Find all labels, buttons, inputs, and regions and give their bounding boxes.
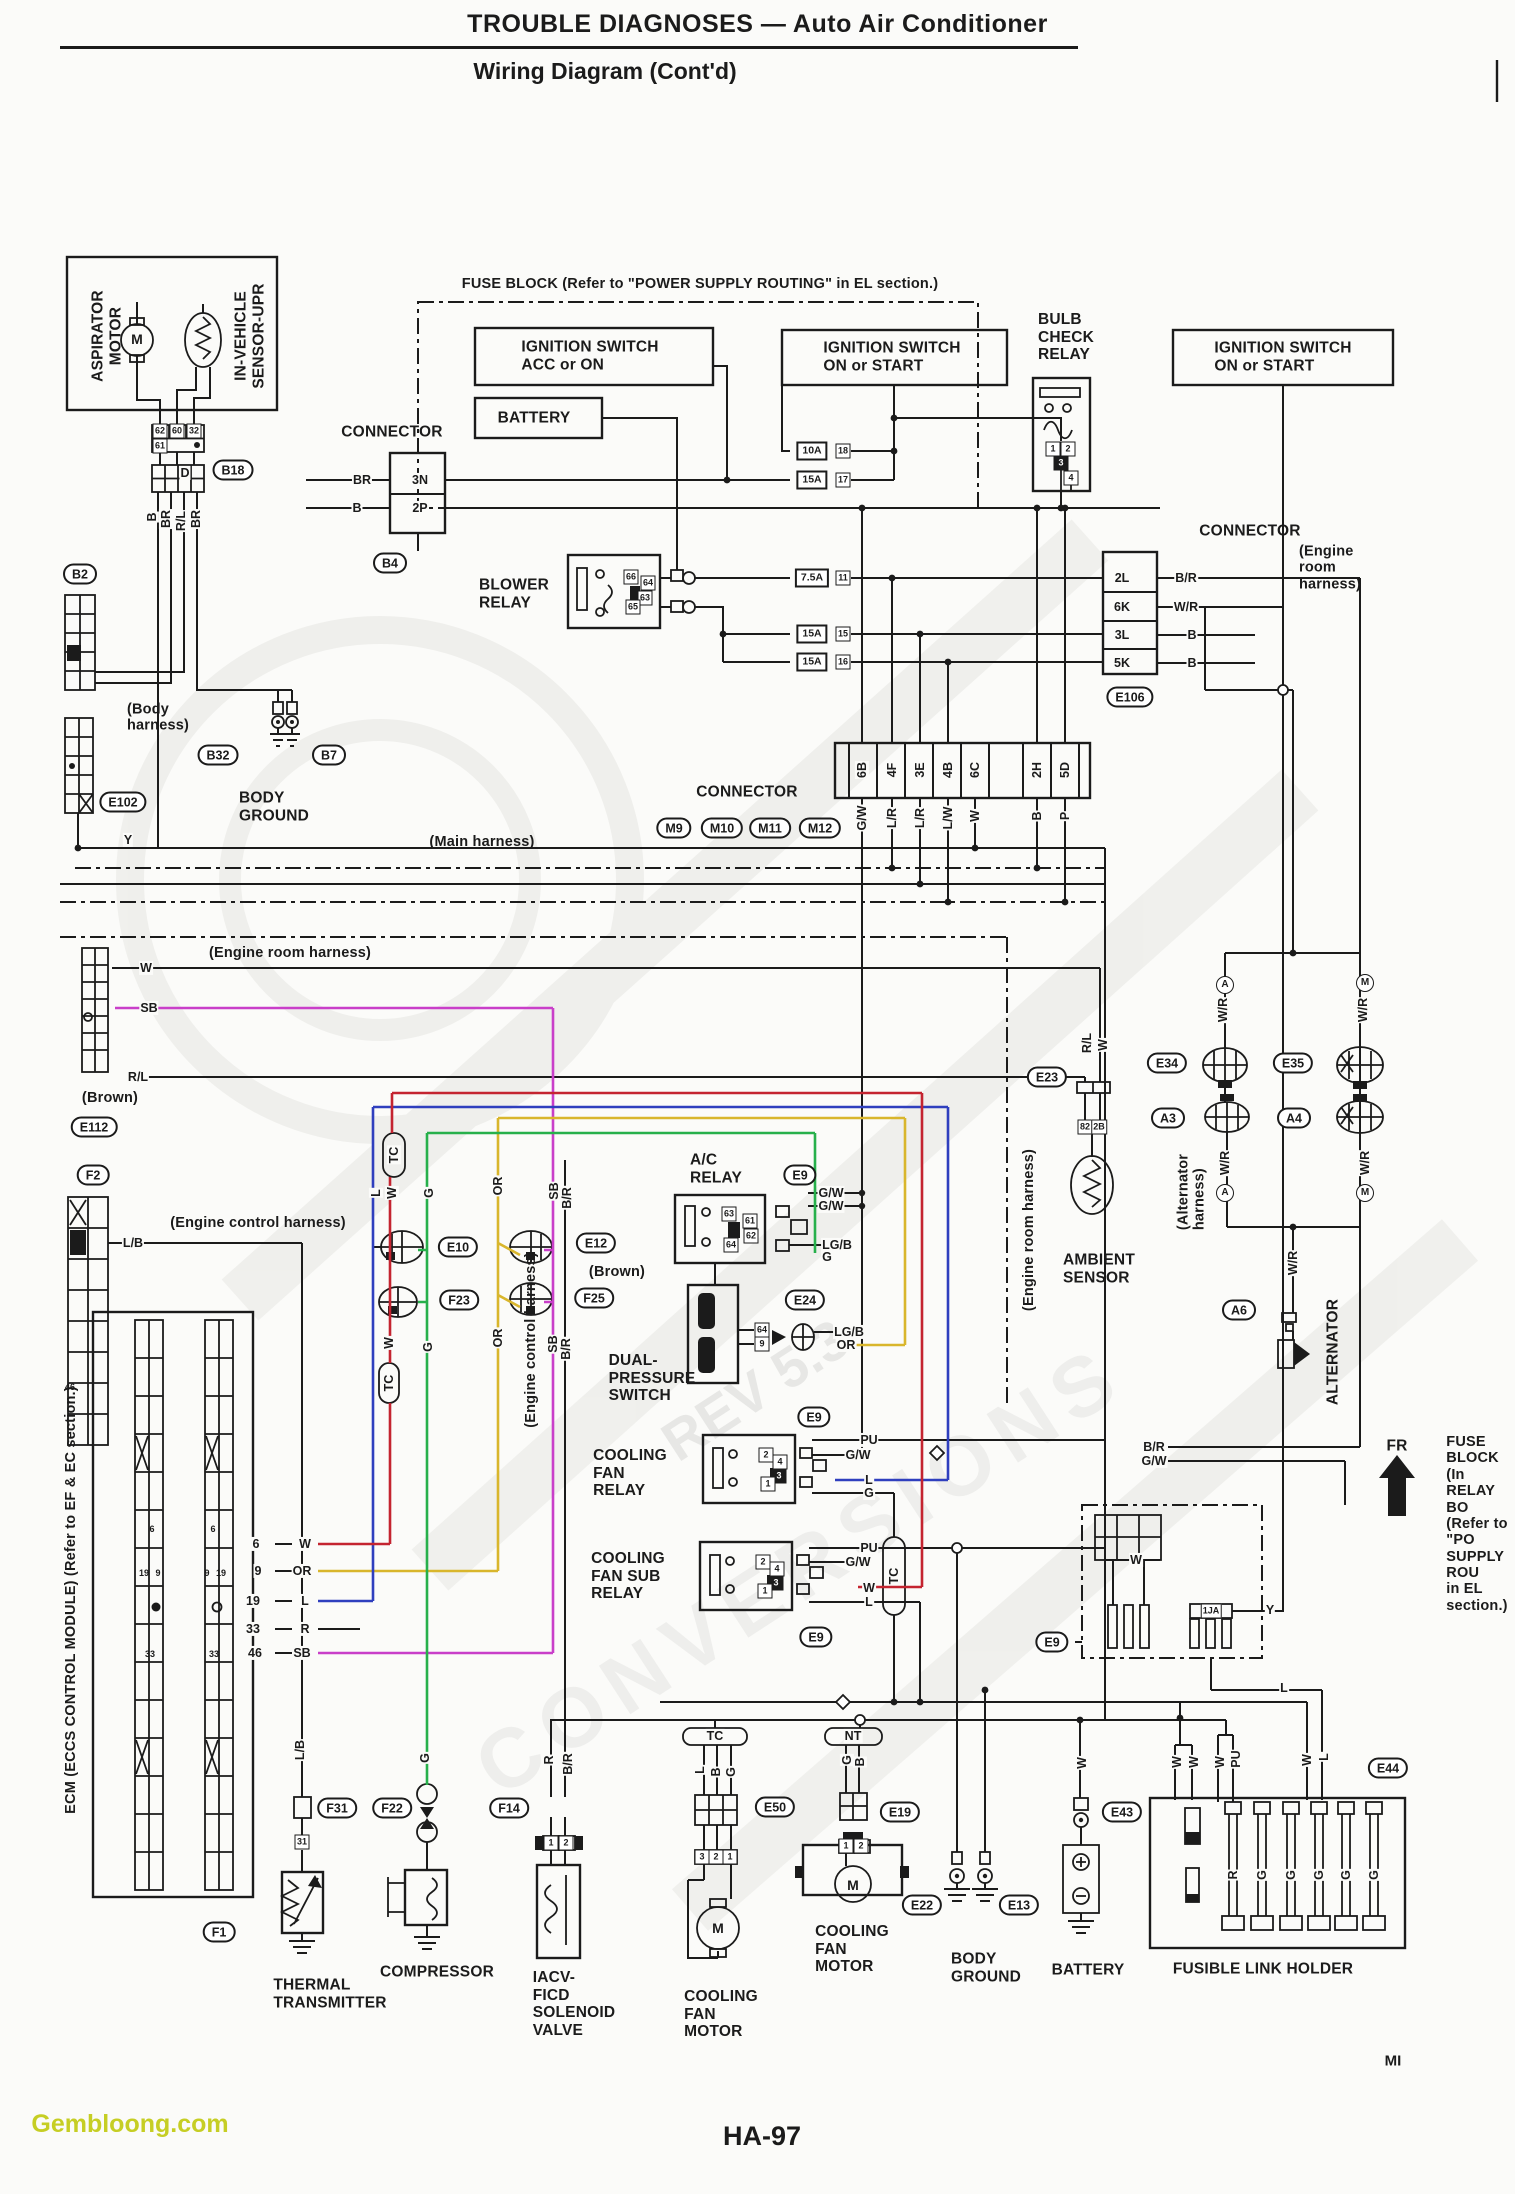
wire-label-pu: PU [859, 1541, 878, 1555]
fuse-number-17: 17 [836, 473, 851, 488]
pin-60: 60 [170, 424, 185, 439]
connector-tag-e24: E24 [785, 1289, 825, 1310]
wire-label-m: M [846, 1878, 860, 1894]
connector-tag-b7: B7 [312, 744, 346, 765]
wire-label-g: G [840, 1754, 854, 1766]
wire-label-r-l: R/L [174, 510, 188, 532]
wire-label-b-r: B/R [1142, 1440, 1166, 1454]
connector-tag-b2: B2 [63, 563, 97, 584]
fr-label: FR [1386, 1437, 1407, 1455]
connector-tag-f25: F25 [574, 1287, 614, 1308]
pin-1: 1 [761, 1477, 776, 1492]
wire-label-l-b: L/B [293, 1739, 307, 1761]
pin-4: 4 [770, 1562, 785, 1577]
wire-label-19: 19 [215, 1568, 227, 1578]
wire-label-9: 9 [254, 1564, 263, 1578]
wire-label-r: R [299, 1622, 310, 1636]
fuse-number-16: 16 [836, 655, 851, 670]
wire-label-g: G [422, 1187, 436, 1199]
engine-room-harness-note-1: (Engine room harness) [1299, 543, 1361, 592]
thermal-transmitter-label: THERMAL TRANSMITTER [273, 1977, 386, 2012]
alternator-harness-note: (Alternator harness) [1176, 1154, 1209, 1230]
fuse-number-11: 11 [836, 571, 851, 586]
wire-label-w: W [298, 1537, 312, 1551]
pin-3: 3 [695, 1850, 710, 1865]
wire-label-2h: 2H [1030, 761, 1044, 779]
pin-3: 3 [1054, 456, 1069, 471]
wire-label-g: G [1284, 1869, 1298, 1881]
connector-tag-e19: E19 [880, 1801, 920, 1822]
body-harness-note: (Body harness) [127, 702, 189, 735]
engine-control-harness-note-1: (Engine control harness) [170, 1215, 346, 1231]
connector-tag-e9: E9 [797, 1406, 830, 1427]
wire-label-r-l: R/L [127, 1070, 149, 1084]
wire-label-33: 33 [208, 1649, 220, 1659]
wire-label-g: G [863, 1486, 875, 1500]
wire-label-w-r: W/R [1216, 997, 1230, 1023]
wire-label-l: L [864, 1595, 874, 1609]
wire-label-9: 9 [154, 1568, 161, 1578]
bulb-check-relay-label: BULB CHECK RELAY [1038, 311, 1094, 364]
wire-label-6c: 6C [968, 761, 982, 779]
pin-63: 63 [722, 1207, 737, 1222]
connector-tag-e35: E35 [1273, 1052, 1313, 1073]
pin-31: 31 [295, 1835, 310, 1850]
brown-note-1: (Brown) [82, 1090, 138, 1106]
wire-label-w-r: W/R [1218, 1150, 1232, 1176]
wire-label-w: W [139, 961, 153, 975]
wire-label-w-r: W/R [1173, 600, 1199, 614]
cooling-fan-sub-relay-label: COOLING FAN SUB RELAY [591, 1550, 665, 1603]
alternator-label: ALTERNATOR [1324, 1299, 1342, 1405]
wire-label-or: OR [836, 1338, 857, 1352]
wire-label-g-w: G/W [1141, 1454, 1168, 1468]
wire-label-y: Y [123, 833, 133, 847]
fuse-15a-16: 15A [796, 653, 827, 672]
pin-2: 2 [854, 1839, 869, 1854]
cooling-fan-motor-1-label: COOLING FAN MOTOR [684, 1988, 758, 2041]
pin-1ja: 1JA [1201, 1604, 1222, 1619]
wire-label-w: W [1096, 1038, 1110, 1052]
body-ground-label-1: BODY GROUND [239, 790, 309, 825]
wire-label-4f: 4F [885, 762, 899, 779]
wire-label-3l: 3L [1114, 628, 1131, 642]
wire-label-b: B [1186, 628, 1197, 642]
wire-label-g: G [1339, 1869, 1353, 1881]
pin-2: 2 [759, 1448, 774, 1463]
pin-64: 64 [755, 1323, 770, 1338]
pin-1: 1 [758, 1584, 773, 1599]
engine-room-harness-note-2: (Engine room harness) [209, 945, 371, 961]
pin-4: 4 [1064, 471, 1079, 486]
connector-tag-m11: M11 [749, 817, 791, 838]
wire-label-b: B [145, 511, 159, 522]
connector-tag-e9: E9 [783, 1164, 816, 1185]
ignition-switch-acc-label: IGNITION SWITCH ACC or ON [521, 339, 658, 374]
wire-label-l-r: L/R [913, 807, 927, 829]
pin-1: 1 [544, 1836, 559, 1851]
fuse-7-5a-11: 7.5A [795, 569, 829, 588]
connector-tag-e22: E22 [902, 1894, 942, 1915]
wire-label-l: L [693, 1765, 707, 1775]
label-overlay: FUSE BLOCK (Refer to "POWER SUPPLY ROUTI… [0, 0, 1515, 2194]
aspirator-motor-label: ASPIRATOR MOTOR [90, 290, 125, 382]
wire-label-y: Y [1265, 1603, 1275, 1617]
connector-tag-e44: E44 [1368, 1757, 1408, 1778]
cooling-fan-relay-label: COOLING FAN RELAY [593, 1447, 667, 1500]
wire-label-r-l: R/L [1080, 1032, 1094, 1054]
fuse-number-18: 18 [836, 444, 851, 459]
main-harness-note: (Main harness) [429, 834, 534, 850]
wire-label-5d: 5D [1058, 761, 1072, 779]
wire-label-6b: 6B [855, 761, 869, 779]
pin-1: 1 [723, 1850, 738, 1865]
connector-label-1: CONNECTOR [341, 423, 442, 441]
wire-label-w: W [1213, 1755, 1227, 1769]
wire-label-46: 46 [247, 1646, 263, 1660]
wire-label-l: L [369, 1188, 383, 1198]
wire-label-b-r: B/R [559, 1337, 573, 1361]
fuse-block-note-2: FUSE BLOCK (In RELAY BO (Refer to "PO SU… [1446, 1434, 1507, 1614]
wire-label-w-r: W/R [1356, 997, 1370, 1023]
wire-label-b: B [853, 1756, 867, 1767]
terminal-a: A [1216, 1184, 1234, 1202]
wire-label-2p: 2P [411, 501, 428, 515]
pin-2: 2 [1061, 442, 1076, 457]
wire-label-p: P [1058, 811, 1072, 821]
wire-label-w: W [1170, 1755, 1184, 1769]
pin-61: 61 [743, 1214, 758, 1229]
wire-label-l-r: L/R [885, 807, 899, 829]
ac-relay-label: A/C RELAY [690, 1152, 742, 1187]
connector-tag-e23: E23 [1027, 1066, 1067, 1087]
pin-2b: 2B [1091, 1120, 1107, 1135]
wire-label-g: G [418, 1752, 432, 1764]
terminal-a: A [1216, 976, 1234, 994]
connector-tag-a6: A6 [1222, 1299, 1256, 1320]
wire-label-33: 33 [144, 1649, 156, 1659]
wire-label-2l: 2L [1114, 571, 1131, 585]
pin-61: 61 [153, 439, 168, 454]
connector-tag-f1: F1 [203, 1921, 236, 1942]
ecm-label: ECM (ECCS CONTROL MODULE) (Refer to EF &… [63, 1386, 79, 1814]
wire-label-l-b: L/B [122, 1236, 144, 1250]
pin-64: 64 [724, 1238, 739, 1253]
wire-label-6: 6 [148, 1524, 155, 1534]
wire-label-b-r: B/R [1174, 571, 1198, 585]
connector-tag-e10: E10 [438, 1236, 478, 1257]
connector-tag-m12: M12 [799, 817, 841, 838]
wire-label-tc: TC [382, 1374, 396, 1393]
wire-label-3n: 3N [411, 473, 429, 487]
wire-label-w: W [385, 1186, 399, 1200]
connector-tag-e34: E34 [1147, 1052, 1187, 1073]
wire-label-9: 9 [203, 1568, 210, 1578]
engine-room-harness-note-3: (Engine room harness) [1021, 1149, 1037, 1311]
wire-label-b: B [1186, 656, 1197, 670]
pin-62: 62 [153, 424, 168, 439]
ignition-switch-start-1-label: IGNITION SWITCH ON or START [823, 340, 960, 375]
wire-label-6: 6 [209, 1524, 216, 1534]
connector-tag-e9: E9 [799, 1626, 832, 1647]
wire-label-g: G [1255, 1869, 1269, 1881]
wire-label-19: 19 [245, 1594, 261, 1608]
wire-label-w-r: W/R [1358, 1150, 1372, 1176]
engine-control-harness-note-2: (Engine control harness) [523, 1252, 539, 1428]
pin-2: 2 [709, 1850, 724, 1865]
connector-tag-f2: F2 [77, 1164, 110, 1185]
wire-label-w: W [1075, 1756, 1089, 1770]
wire-label-4b: 4B [941, 761, 955, 779]
connector-tag-b4: B4 [373, 552, 407, 573]
wire-label-d: D [179, 466, 190, 480]
connector-tag-e43: E43 [1102, 1801, 1142, 1822]
wire-label-l: L [864, 1473, 874, 1487]
connector-tag-e13: E13 [999, 1894, 1039, 1915]
connector-tag-m10: M10 [701, 817, 743, 838]
wire-label-b-r: B/R [561, 1752, 575, 1776]
wire-label-w-r: W/R [1286, 1250, 1300, 1276]
battery-label-1: BATTERY [498, 409, 571, 427]
connector-tag-e102: E102 [99, 791, 146, 812]
compressor-label: COMPRESSOR [380, 1963, 494, 1981]
pin-66: 66 [624, 570, 639, 585]
wire-label-b: B [709, 1766, 723, 1777]
wire-label-g: G [724, 1766, 738, 1778]
wire-label-w: W [1300, 1753, 1314, 1767]
connector-tag-e9: E9 [1035, 1631, 1068, 1652]
wire-label-lg-b: LG/B [833, 1325, 865, 1339]
wire-label-g: G [821, 1250, 833, 1264]
iacv-ficd-label: IACV- FICD SOLENOID VALVE [533, 1969, 616, 2039]
pin-65: 65 [626, 600, 641, 615]
wire-label-6k: 6K [1113, 600, 1131, 614]
wire-label-sb: SB [292, 1646, 311, 1660]
wire-label-w: W [382, 1336, 396, 1350]
wire-label-w: W [968, 809, 982, 823]
dual-pressure-switch-label: DUAL- PRESSURE SWITCH [609, 1352, 696, 1405]
body-ground-label-2: BODY GROUND [951, 1951, 1021, 1986]
connector-tag-e50: E50 [755, 1796, 795, 1817]
wire-label-g: G [1367, 1869, 1381, 1881]
wire-label-tc: TC [887, 1567, 901, 1586]
pin-9: 9 [755, 1337, 770, 1352]
wire-label-3e: 3E [913, 761, 927, 778]
wire-label-nt: NT [844, 1729, 863, 1743]
in-vehicle-sensor-label: IN-VEHICLE SENSOR-UPR [233, 283, 268, 388]
wire-label-or: OR [292, 1564, 313, 1578]
ignition-switch-start-2-label: IGNITION SWITCH ON or START [1214, 340, 1351, 375]
cooling-fan-motor-2-label: COOLING FAN MOTOR [815, 1923, 889, 1976]
wire-label-b: B [351, 501, 362, 515]
wire-label-g-w: G/W [845, 1448, 872, 1462]
connector-label-2: CONNECTOR [1199, 522, 1300, 540]
wire-label-or: OR [491, 1176, 505, 1197]
wire-label-b-r: B/R [560, 1186, 574, 1210]
wire-label-tc: TC [387, 1146, 401, 1165]
wire-label-6: 6 [252, 1537, 261, 1551]
ambient-sensor-label: AMBIENT SENSOR [1063, 1252, 1135, 1287]
connector-tag-f14: F14 [489, 1797, 529, 1818]
wire-label-l: L [300, 1594, 310, 1608]
connector-tag-b18: B18 [213, 459, 254, 480]
pin-32: 32 [187, 424, 202, 439]
wire-label-sb: SB [547, 1181, 561, 1200]
fuse-number-15: 15 [836, 627, 851, 642]
wire-label-m: M [130, 332, 144, 348]
connector-tag-a3: A3 [1151, 1107, 1185, 1128]
wire-label-g: G [1312, 1869, 1326, 1881]
connector-tag-m9: M9 [656, 817, 691, 838]
wire-label-m: M [711, 1921, 725, 1937]
wire-label-pu: PU [1229, 1749, 1243, 1768]
wire-label-w: W [862, 1581, 876, 1595]
wire-label-r: R [1226, 1869, 1240, 1880]
connector-tag-e12: E12 [576, 1232, 616, 1253]
wire-label-br: BR [159, 509, 173, 529]
blower-relay-label: BLOWER RELAY [479, 577, 549, 612]
wire-label-or: OR [491, 1328, 505, 1349]
pin-1: 1 [1046, 442, 1061, 457]
wire-label-w: W [1187, 1755, 1201, 1769]
connector-label-3: CONNECTOR [696, 783, 797, 801]
wire-label-pu: PU [859, 1433, 878, 1447]
wire-label-g-w: G/W [845, 1555, 872, 1569]
pin-1: 1 [839, 1839, 854, 1854]
wire-label-g: G [421, 1341, 435, 1353]
wire-label-l: L [1317, 1752, 1331, 1762]
connector-tag-e112: E112 [71, 1116, 118, 1137]
manual-page: TROUBLE DIAGNOSES — Auto Air Conditioner… [0, 0, 1515, 2194]
wire-label-r: R [542, 1754, 556, 1765]
wire-label-w: W [1129, 1553, 1143, 1567]
battery-label-2: BATTERY [1052, 1961, 1125, 1979]
wire-label-br: BR [189, 509, 203, 529]
wire-label-l: L [1279, 1681, 1289, 1695]
fuse-15a-15: 15A [796, 625, 827, 644]
wire-label-g-w: G/W [818, 1199, 845, 1213]
wire-label-tc: TC [706, 1729, 725, 1743]
wire-label-g-w: G/W [855, 805, 869, 832]
connector-tag-f23: F23 [439, 1289, 479, 1310]
connector-tag-f31: F31 [317, 1797, 357, 1818]
wire-label-b: B [1030, 810, 1044, 821]
fuse-15a-17: 15A [796, 471, 827, 490]
wire-label-g-w: G/W [818, 1186, 845, 1200]
pin-62: 62 [744, 1229, 759, 1244]
connector-tag-b32: B32 [198, 744, 239, 765]
pin-64: 64 [641, 576, 656, 591]
wire-label-5k: 5K [1113, 656, 1131, 670]
connector-tag-a4: A4 [1277, 1107, 1311, 1128]
pin-2: 2 [559, 1836, 574, 1851]
pin-2: 2 [756, 1555, 771, 1570]
fuse-10a-18: 10A [796, 442, 827, 461]
terminal-m: M [1356, 1184, 1374, 1202]
wire-label-sb: SB [139, 1001, 158, 1015]
connector-tag-f22: F22 [372, 1797, 412, 1818]
fusible-link-holder-label: FUSIBLE LINK HOLDER [1173, 1960, 1353, 1978]
wire-label-46: 46 [64, 1382, 76, 1392]
wire-label-l-w: L/W [941, 806, 955, 831]
terminal-m: M [1356, 974, 1374, 992]
fuse-block-note: FUSE BLOCK (Refer to "POWER SUPPLY ROUTI… [462, 276, 938, 292]
connector-tag-e106: E106 [1106, 686, 1153, 707]
wire-label-br: BR [352, 473, 372, 487]
brown-note-2: (Brown) [589, 1264, 645, 1280]
wire-label-19: 19 [138, 1568, 150, 1578]
wire-label-33: 33 [245, 1622, 261, 1636]
wire-label-sb: SB [546, 1334, 560, 1353]
pin-4: 4 [773, 1455, 788, 1470]
